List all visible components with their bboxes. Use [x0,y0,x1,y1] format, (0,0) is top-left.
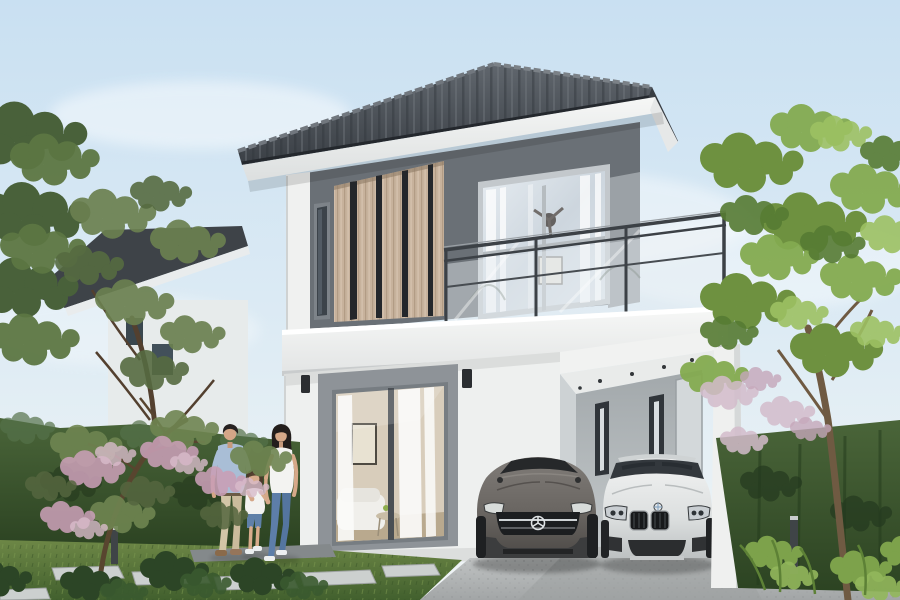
upper-slit-window [314,202,330,320]
timber-slat-screen [334,161,444,322]
interior-picture [352,424,376,464]
living-room-window [318,364,458,552]
mercedes-grille [496,512,580,535]
architectural-render [0,0,900,600]
mercedes-car [473,457,601,573]
bmw-wheel [601,520,609,558]
wall-sconce [462,369,472,388]
wall-sconce [301,375,310,393]
corner-pilaster [286,172,310,335]
mercedes-wheel [587,514,598,558]
mercedes-mirror [497,477,503,483]
house-render-image [0,0,900,600]
bmw-car [600,454,716,574]
mercedes-wheel [476,516,486,558]
